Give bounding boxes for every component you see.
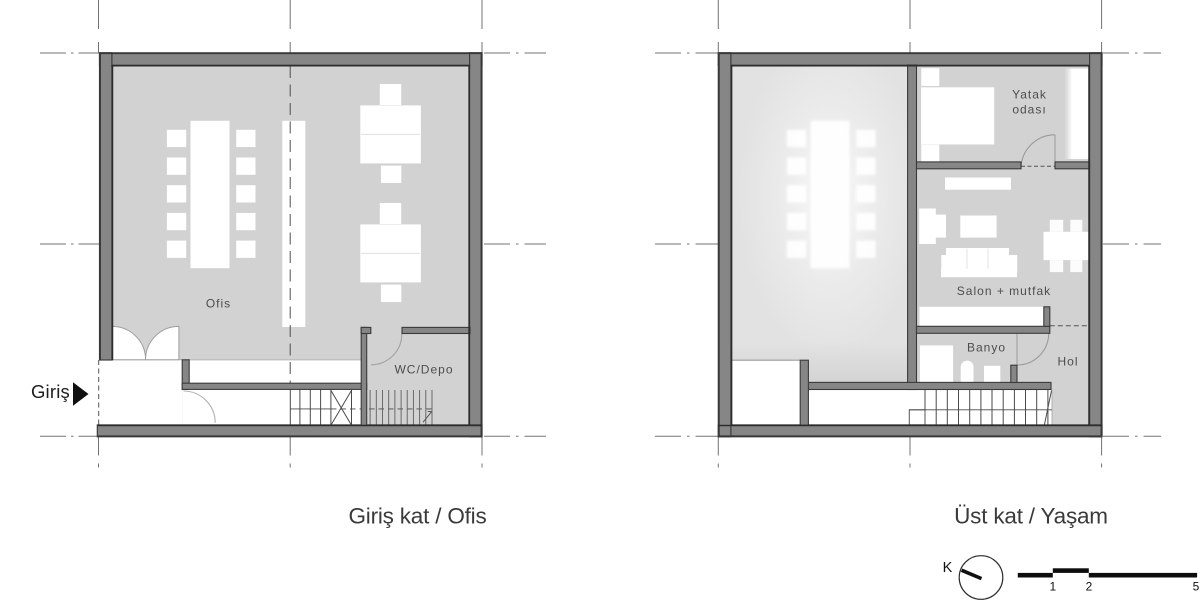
svg-text:Giriş kat / Ofis: Giriş kat / Ofis xyxy=(348,504,486,529)
svg-text:Yatak: Yatak xyxy=(1012,88,1047,102)
svg-text:K: K xyxy=(943,560,953,576)
svg-text:5: 5 xyxy=(1193,580,1200,594)
svg-text:odası: odası xyxy=(1012,103,1046,117)
svg-text:Ofis: Ofis xyxy=(206,296,231,310)
svg-text:Giriş: Giriş xyxy=(31,381,70,402)
svg-text:Salon + mutfak: Salon + mutfak xyxy=(957,284,1051,298)
svg-text:2: 2 xyxy=(1086,580,1093,594)
svg-text:WC/Depo: WC/Depo xyxy=(394,363,453,377)
svg-text:Hol: Hol xyxy=(1057,355,1078,369)
svg-text:Üst kat / Yaşam: Üst kat / Yaşam xyxy=(954,504,1108,529)
svg-text:1: 1 xyxy=(1050,580,1057,594)
svg-text:Banyo: Banyo xyxy=(967,341,1006,355)
